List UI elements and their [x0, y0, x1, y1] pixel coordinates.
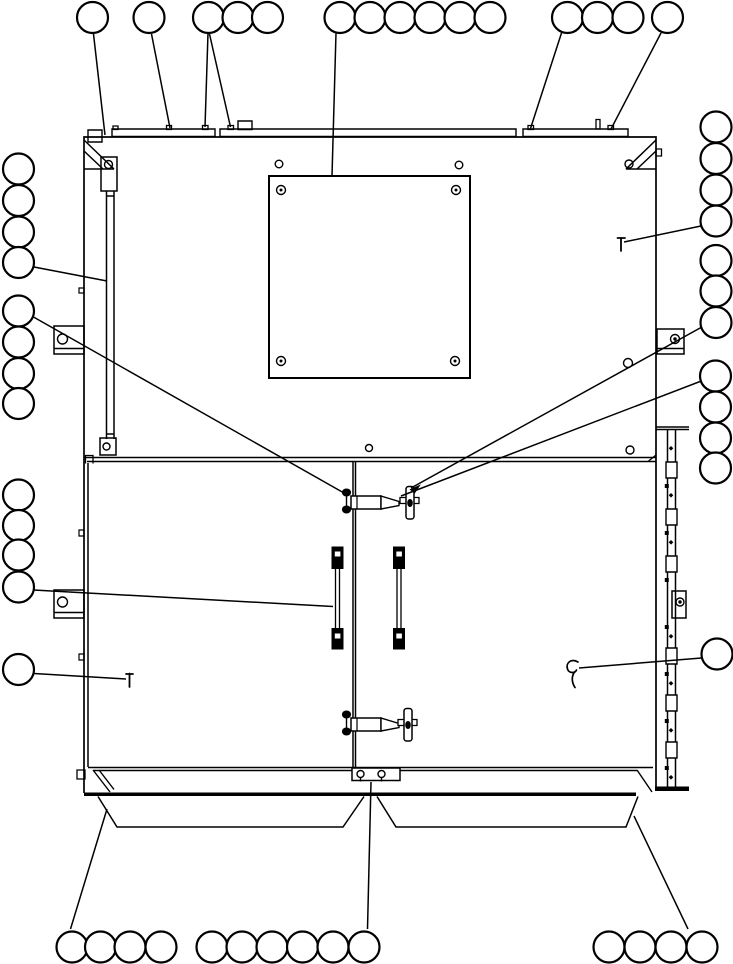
callout-balloon-top-row[interactable]: [415, 2, 446, 33]
callout-balloon-top-row[interactable]: [223, 2, 254, 33]
leader-line: [34, 317, 345, 493]
callout-balloon-left-column[interactable]: [3, 480, 34, 511]
callout-balloon-left-column[interactable]: [3, 185, 34, 216]
callout-balloon-bottom-row[interactable]: [287, 932, 318, 963]
callout-balloon-bottom-row[interactable]: [57, 932, 88, 963]
latch-lower-tbar-center: [405, 721, 411, 729]
callout-balloon-left-column[interactable]: [3, 510, 34, 541]
callout-balloon-right-column[interactable]: [700, 423, 731, 454]
callout-balloon-bottom-row[interactable]: [227, 932, 258, 963]
callout-balloon-right-column[interactable]: [701, 307, 732, 338]
corner-gusset-right: [626, 140, 656, 169]
hinge-strip: [107, 191, 115, 439]
callout-balloon-bottom-row[interactable]: [349, 932, 380, 963]
top-rail-segments: [112, 129, 628, 137]
callout-balloon-left-column[interactable]: [3, 296, 34, 327]
plate-bolt-tr-center: [455, 189, 458, 192]
callout-balloon-right-column[interactable]: [702, 639, 733, 670]
callout-balloon-top-row[interactable]: [355, 2, 386, 33]
callout-balloon-left-column[interactable]: [3, 247, 34, 278]
screw-pin-left: [126, 674, 133, 688]
leader-line: [71, 809, 108, 929]
plate-bolt-br-center: [454, 360, 457, 363]
leader-line: [205, 33, 208, 127]
callout-balloon-top-row[interactable]: [134, 2, 165, 33]
callout-balloon-left-column[interactable]: [3, 572, 34, 603]
leader-line: [34, 590, 334, 607]
callout-balloon-top-row[interactable]: [475, 2, 506, 33]
top-rail-left-box: [88, 130, 102, 142]
callout-balloon-bottom-row[interactable]: [656, 932, 687, 963]
bracket-right-upper-pin: [673, 337, 676, 340]
corner-gusset-left: [84, 140, 114, 169]
leader-line: [152, 34, 171, 128]
leader-line: [579, 658, 702, 668]
leader-line: [624, 226, 701, 242]
latch-lower-body: [351, 718, 381, 731]
boundary-right-notch: [648, 455, 656, 462]
latch-lower-cone: [381, 718, 399, 731]
leader-line: [34, 674, 126, 680]
plate-bolt-tl-center: [280, 189, 283, 192]
leader-line: [611, 33, 661, 129]
callout-balloon-right-column[interactable]: [701, 276, 732, 307]
hinge-top-bracket: [101, 157, 117, 191]
side-bracket-left-upper: [54, 326, 84, 354]
leader-line: [94, 34, 106, 135]
callout-balloon-top-row[interactable]: [252, 2, 283, 33]
latch-upper-tbar-center: [407, 499, 413, 507]
plate-bolt-bl-center: [280, 360, 283, 363]
callout-balloon-bottom-row[interactable]: [197, 932, 228, 963]
hinge-bottom-bracket-hole: [103, 443, 110, 450]
callout-balloon-top-row[interactable]: [652, 2, 683, 33]
latch-lower-bolt-bottom: [342, 728, 351, 736]
callout-balloon-right-column[interactable]: [700, 361, 731, 392]
leader-line: [210, 34, 231, 127]
panel-hole-top-left: [275, 160, 283, 168]
handle-right-shaft: [397, 569, 401, 629]
bracket-left-lower-hole: [58, 597, 68, 607]
callout-balloon-right-column[interactable]: [700, 392, 731, 423]
mounting-plate: [269, 176, 470, 378]
callout-balloon-top-row[interactable]: [77, 2, 108, 33]
panel-hole-center: [366, 445, 373, 452]
leader-line: [34, 267, 107, 281]
callout-balloon-right-column[interactable]: [701, 112, 732, 143]
leader-line: [368, 782, 372, 929]
callout-balloon-top-row[interactable]: [552, 2, 583, 33]
cabinet-frame: [84, 137, 656, 793]
callout-balloon-top-row[interactable]: [385, 2, 416, 33]
callout-balloon-top-row[interactable]: [613, 2, 644, 33]
callout-balloon-bottom-row[interactable]: [318, 932, 349, 963]
panel-boundary: [84, 458, 656, 462]
callout-balloon-bottom-row[interactable]: [687, 932, 718, 963]
leader-line: [634, 816, 688, 929]
latch-lower-bolt-top: [342, 711, 351, 719]
latch-upper-cone: [381, 496, 399, 509]
callout-balloon-bottom-row[interactable]: [115, 932, 146, 963]
handle-left-shaft: [336, 569, 340, 629]
callout-balloon-left-column[interactable]: [3, 154, 34, 185]
callout-balloon-right-column[interactable]: [701, 245, 732, 276]
leader-line: [332, 33, 336, 176]
parts-diagram-page: [0, 0, 733, 964]
screw-pin-right: [618, 238, 626, 251]
latch-upper-bolt-bottom: [342, 506, 351, 514]
door-stay-hook: [567, 661, 578, 688]
callout-balloon-bottom-row[interactable]: [257, 932, 288, 963]
callout-balloon-top-row[interactable]: [582, 2, 613, 33]
leader-line: [530, 33, 562, 130]
callout-balloon-left-column[interactable]: [3, 388, 34, 419]
parts-diagram: [0, 0, 733, 964]
door-hole-right: [626, 446, 634, 454]
callout-balloon-right-column[interactable]: [701, 175, 732, 206]
callout-balloon-right-column[interactable]: [701, 206, 732, 237]
top-rail-riser-box: [238, 121, 252, 130]
bracket-right-lower-pin: [678, 600, 681, 603]
callout-balloon-left-column[interactable]: [3, 654, 34, 685]
callout-balloon-left-column[interactable]: [3, 540, 34, 571]
callout-balloon-top-row[interactable]: [193, 2, 224, 33]
door-top-left-hook: [86, 456, 94, 464]
callout-balloon-top-row[interactable]: [325, 2, 356, 33]
callout-balloon-right-column[interactable]: [700, 453, 731, 484]
callout-balloon-left-column[interactable]: [3, 217, 34, 248]
callout-balloon-left-column[interactable]: [3, 358, 34, 389]
callout-balloon-bottom-row[interactable]: [85, 932, 116, 963]
panel-hole-top-right: [455, 161, 463, 169]
callout-balloon-bottom-row[interactable]: [625, 932, 656, 963]
callout-balloon-bottom-row[interactable]: [146, 932, 177, 963]
latch-upper-body: [351, 496, 381, 509]
top-rail-bolt-nubs: [113, 120, 614, 130]
callout-balloon-top-row[interactable]: [445, 2, 476, 33]
bottom-center-hinge-plate: [352, 768, 400, 781]
bottom-heavy-bar: [84, 793, 636, 797]
callout-balloon-bottom-row[interactable]: [594, 932, 625, 963]
leader-line: [411, 328, 701, 489]
callout-balloon-left-column[interactable]: [3, 327, 34, 358]
callout-balloon-right-column[interactable]: [701, 143, 732, 174]
drip-trays: [98, 797, 638, 828]
hinge-rail-bottom-cap: [655, 787, 689, 792]
